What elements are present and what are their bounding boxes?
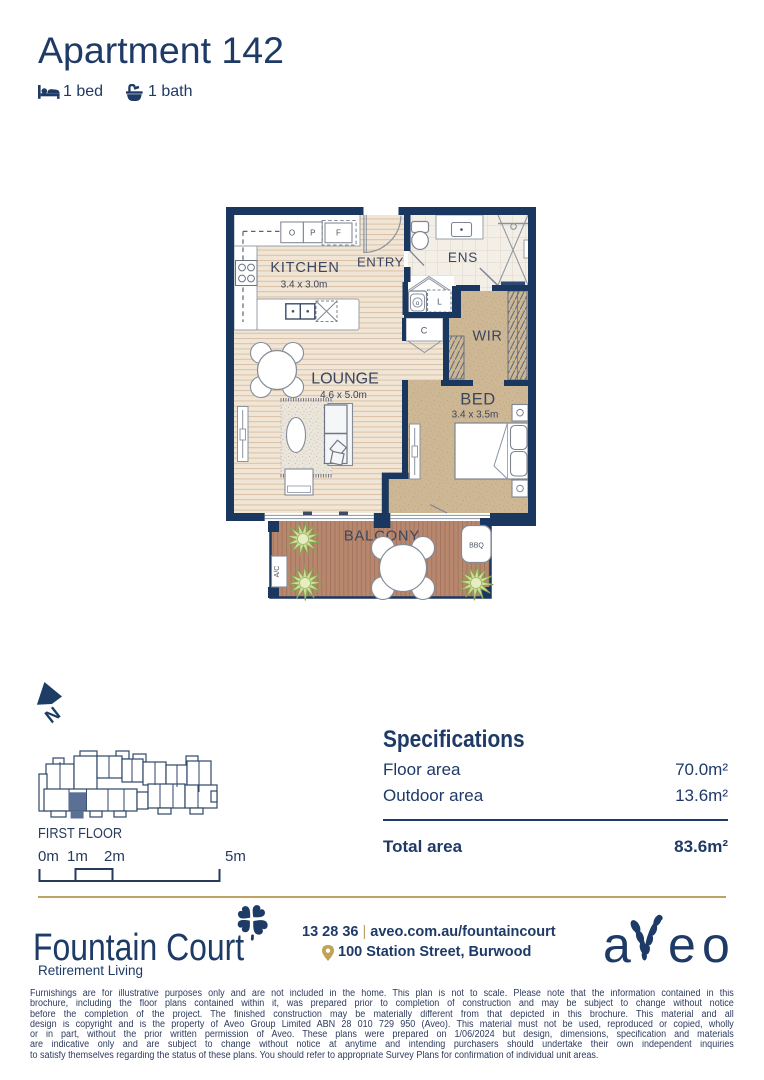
svg-text:L: L [437,297,442,307]
svg-text:3.4 x 3.5m: 3.4 x 3.5m [452,410,499,421]
svg-text:WIR: WIR [473,329,503,345]
svg-text:A/C: A/C [274,566,281,578]
svg-text:P: P [310,229,315,238]
svg-text:4.6 x 5.0m: 4.6 x 5.0m [320,390,367,401]
svg-text:F: F [336,229,341,238]
svg-text:ENTRY: ENTRY [357,255,404,270]
svg-text:o: o [416,300,420,307]
svg-text:3.4 x 3.0m: 3.4 x 3.0m [281,280,328,291]
svg-text:KITCHEN: KITCHEN [270,260,339,276]
svg-text:a: a [603,917,631,968]
svg-text:C: C [421,326,428,336]
svg-text:BBQ: BBQ [469,543,484,550]
svg-text:LOUNGE: LOUNGE [311,371,379,388]
svg-text:o: o [702,917,730,968]
svg-text:O: O [289,229,295,238]
svg-text:e: e [668,917,696,968]
svg-text:N: N [41,702,64,727]
svg-text:BED: BED [460,391,495,409]
svg-text:ENS: ENS [448,250,478,265]
